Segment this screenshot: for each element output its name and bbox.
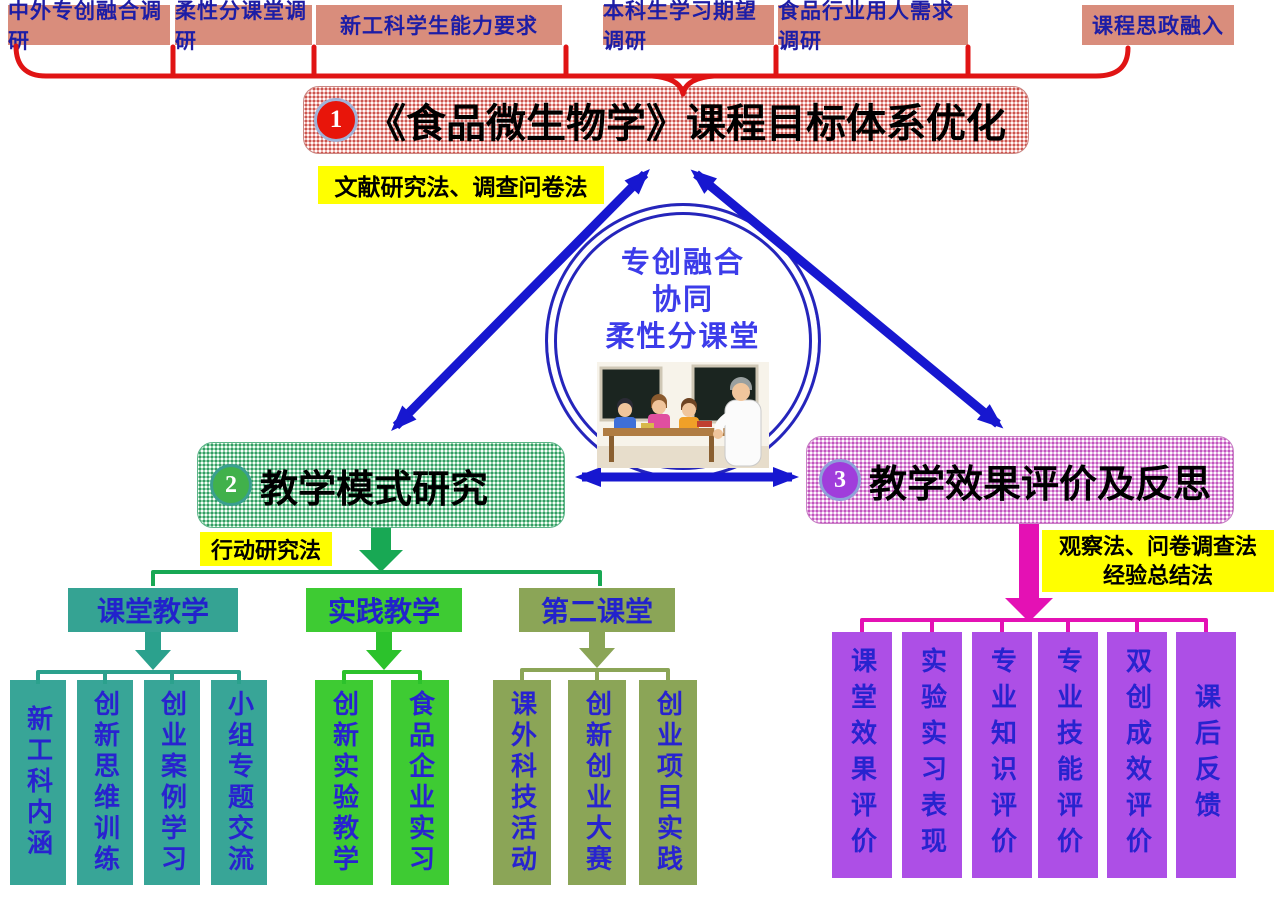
leaf-innovation-competition: 创新创业大赛 — [568, 680, 626, 885]
eval-professional-skills: 专业技能评价 — [1038, 632, 1098, 878]
stage2-title: 教学模式研究 — [260, 458, 488, 513]
leaf-startup-project: 创业项目实践 — [639, 680, 697, 885]
branch-second-classroom: 第二课堂 — [519, 588, 675, 632]
leaf-innovative-experiment: 创新实验教学 — [315, 680, 373, 885]
center-circle — [545, 203, 821, 479]
survey-box-2: 柔性分课堂调研 — [175, 5, 312, 45]
leaf-new-engineering: 新工科内涵 — [10, 680, 66, 885]
eval-innovation-outcome: 双创成效评价 — [1107, 632, 1167, 878]
stage2-method-label: 行动研究法 — [200, 532, 332, 566]
leaf-case-study: 创业案例学习 — [144, 680, 200, 885]
branch-classroom-teaching: 课堂教学 — [68, 588, 238, 632]
branch-practice-teaching: 实践教学 — [306, 588, 462, 632]
diagram-canvas: 中外专创融合调研 柔性分课堂调研 新工科学生能力要求 本科生学习期望调研 食品行… — [0, 0, 1274, 907]
survey-box-3: 新工科学生能力要求 — [316, 5, 562, 45]
leaf-innovation-thinking: 创新思维训练 — [77, 680, 133, 885]
stage1-number-badge: 1 — [314, 98, 358, 142]
survey-box-1: 中外专创融合调研 — [8, 5, 170, 45]
survey-box-5: 食品行业用人需求调研 — [778, 5, 968, 45]
green-branch-rail — [153, 572, 600, 586]
eval-after-class-feedback: 课后反馈 — [1176, 632, 1236, 878]
stage1-method-label: 文献研究法、调查问卷法 — [318, 166, 604, 204]
stage3-method-label: 观察法、问卷调查法 经验总结法 — [1042, 530, 1274, 592]
eval-classroom-effect: 课堂效果评价 — [832, 632, 892, 878]
stage2-number-badge: 2 — [210, 464, 252, 506]
stage3-title-box: 3 教学效果评价及反思 — [806, 436, 1234, 524]
stage1-title-box: 1 《食品微生物学》课程目标体系优化 — [303, 86, 1029, 154]
teal-branch-rail — [38, 672, 239, 684]
survey-box-6: 课程思政融入 — [1082, 5, 1234, 45]
eval-experiment-performance: 实验实习表现 — [902, 632, 962, 878]
bright-green-down-arrow — [366, 632, 402, 670]
survey-box-4: 本科生学习期望调研 — [603, 5, 774, 45]
leaf-extracurricular-science: 课外科技活动 — [493, 680, 551, 885]
stage3-number-badge: 3 — [819, 459, 861, 501]
eval-professional-knowledge: 专业知识评价 — [972, 632, 1032, 878]
stage3-title: 教学效果评价及反思 — [869, 453, 1211, 508]
stage3-method-line1: 观察法、问卷调查法 — [1059, 532, 1257, 561]
teal-down-arrow — [135, 632, 171, 670]
magenta-branch-rail — [862, 620, 1206, 632]
green-down-arrow — [359, 528, 403, 572]
olive-down-arrow — [579, 632, 615, 668]
leaf-enterprise-internship: 食品企业实习 — [391, 680, 449, 885]
stage2-title-box: 2 教学模式研究 — [197, 442, 565, 528]
leaf-group-discussion: 小组专题交流 — [211, 680, 267, 885]
stage3-method-line2: 经验总结法 — [1103, 561, 1213, 590]
stage1-title: 《食品微生物学》课程目标体系优化 — [366, 91, 1006, 149]
